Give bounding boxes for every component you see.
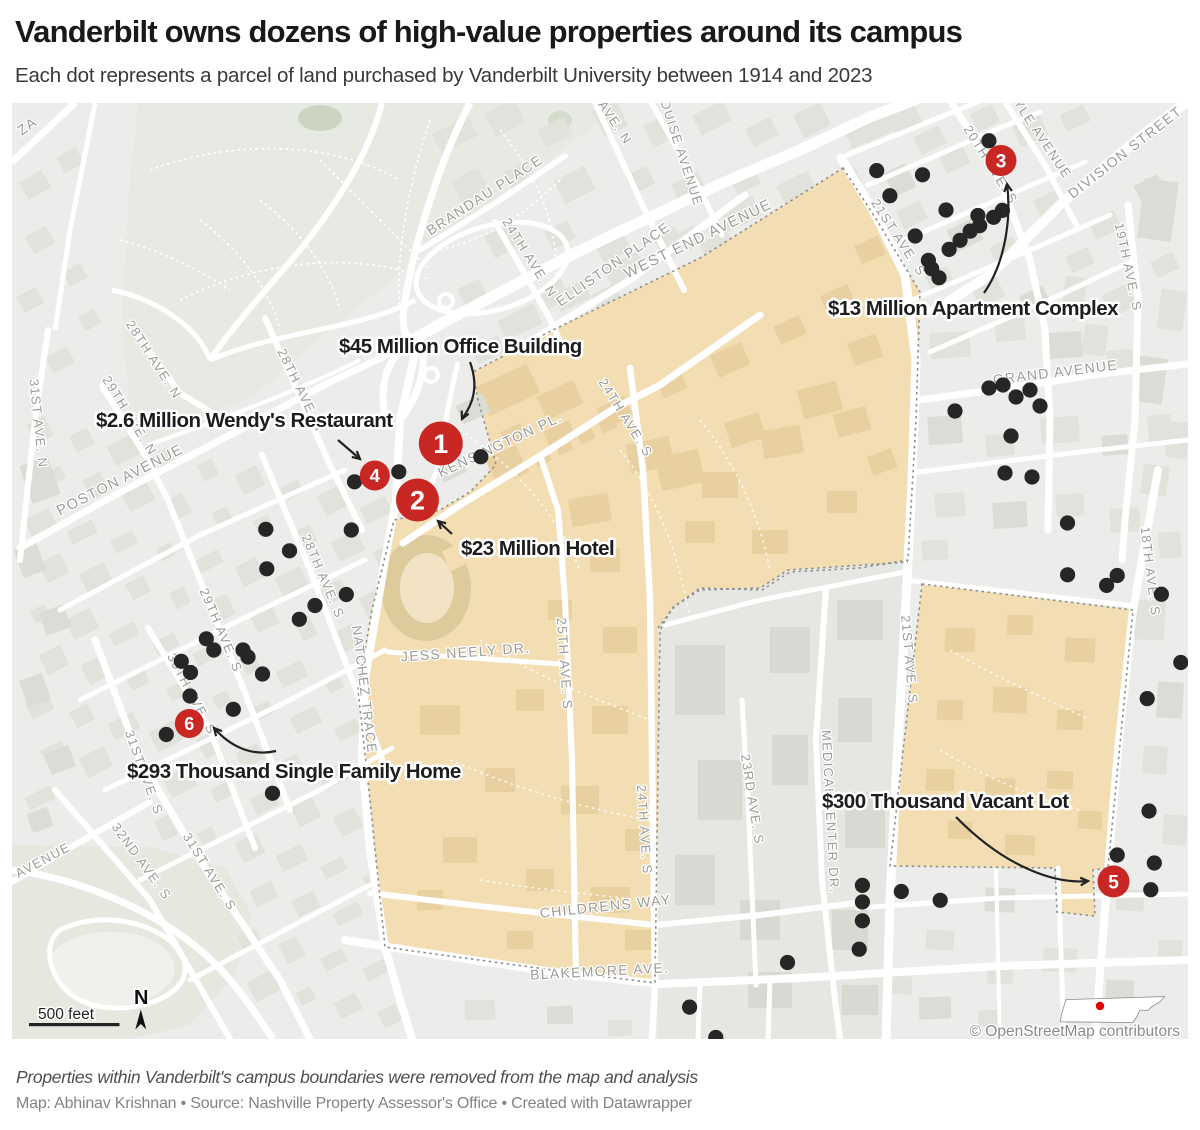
svg-text:© OpenStreetMap contributors: © OpenStreetMap contributors — [970, 1023, 1181, 1039]
svg-text:5: 5 — [1108, 872, 1119, 893]
svg-text:$293 Thousand Single Family Ho: $293 Thousand Single Family Home — [127, 760, 461, 783]
svg-text:4: 4 — [370, 465, 381, 486]
svg-text:2: 2 — [410, 486, 425, 516]
svg-text:500 feet: 500 feet — [38, 1006, 95, 1023]
svg-text:$23 Million Hotel: $23 Million Hotel — [461, 537, 614, 560]
svg-text:$45 Million Office Building: $45 Million Office Building — [339, 335, 582, 358]
svg-text:N: N — [134, 987, 148, 1009]
svg-text:$2.6 Million Wendy's Restauran: $2.6 Million Wendy's Restaurant — [96, 409, 393, 432]
svg-text:$300 Thousand Vacant Lot: $300 Thousand Vacant Lot — [822, 790, 1069, 813]
svg-text:1: 1 — [433, 429, 448, 459]
svg-text:$13 Million Apartment Complex: $13 Million Apartment Complex — [828, 297, 1119, 320]
svg-text:3: 3 — [996, 151, 1007, 172]
svg-text:6: 6 — [184, 714, 194, 734]
